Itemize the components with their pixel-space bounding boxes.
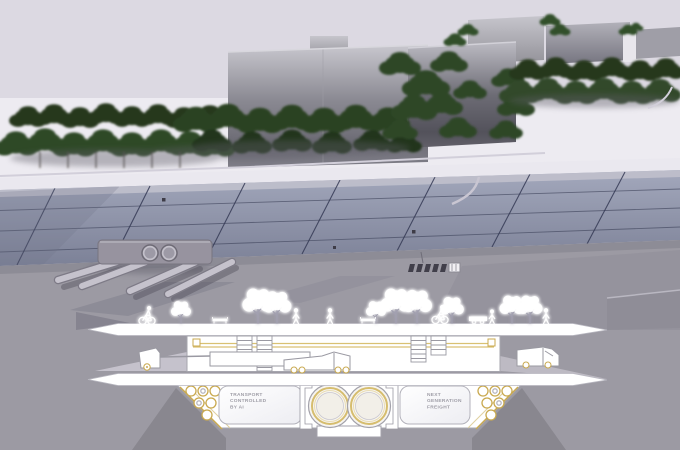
white-tower [623, 33, 636, 62]
gold-box-right [488, 339, 495, 346]
freight-truck-right [517, 347, 559, 368]
architectural-render: TRANSPORT CONTROLLED BY AI NEXT GENERATI… [0, 0, 680, 450]
freight-level [139, 336, 559, 373]
slab-surface [88, 324, 607, 336]
tunnel-right [348, 385, 391, 428]
render-canvas [0, 0, 680, 450]
slab-mid [88, 374, 607, 386]
train-end-car [449, 263, 460, 272]
gold-box-left [193, 339, 200, 346]
panel-next-gen-freight [400, 386, 470, 424]
building-far-right [632, 27, 680, 59]
tunnel-left [309, 385, 352, 428]
panel-transport-ai [219, 386, 302, 424]
